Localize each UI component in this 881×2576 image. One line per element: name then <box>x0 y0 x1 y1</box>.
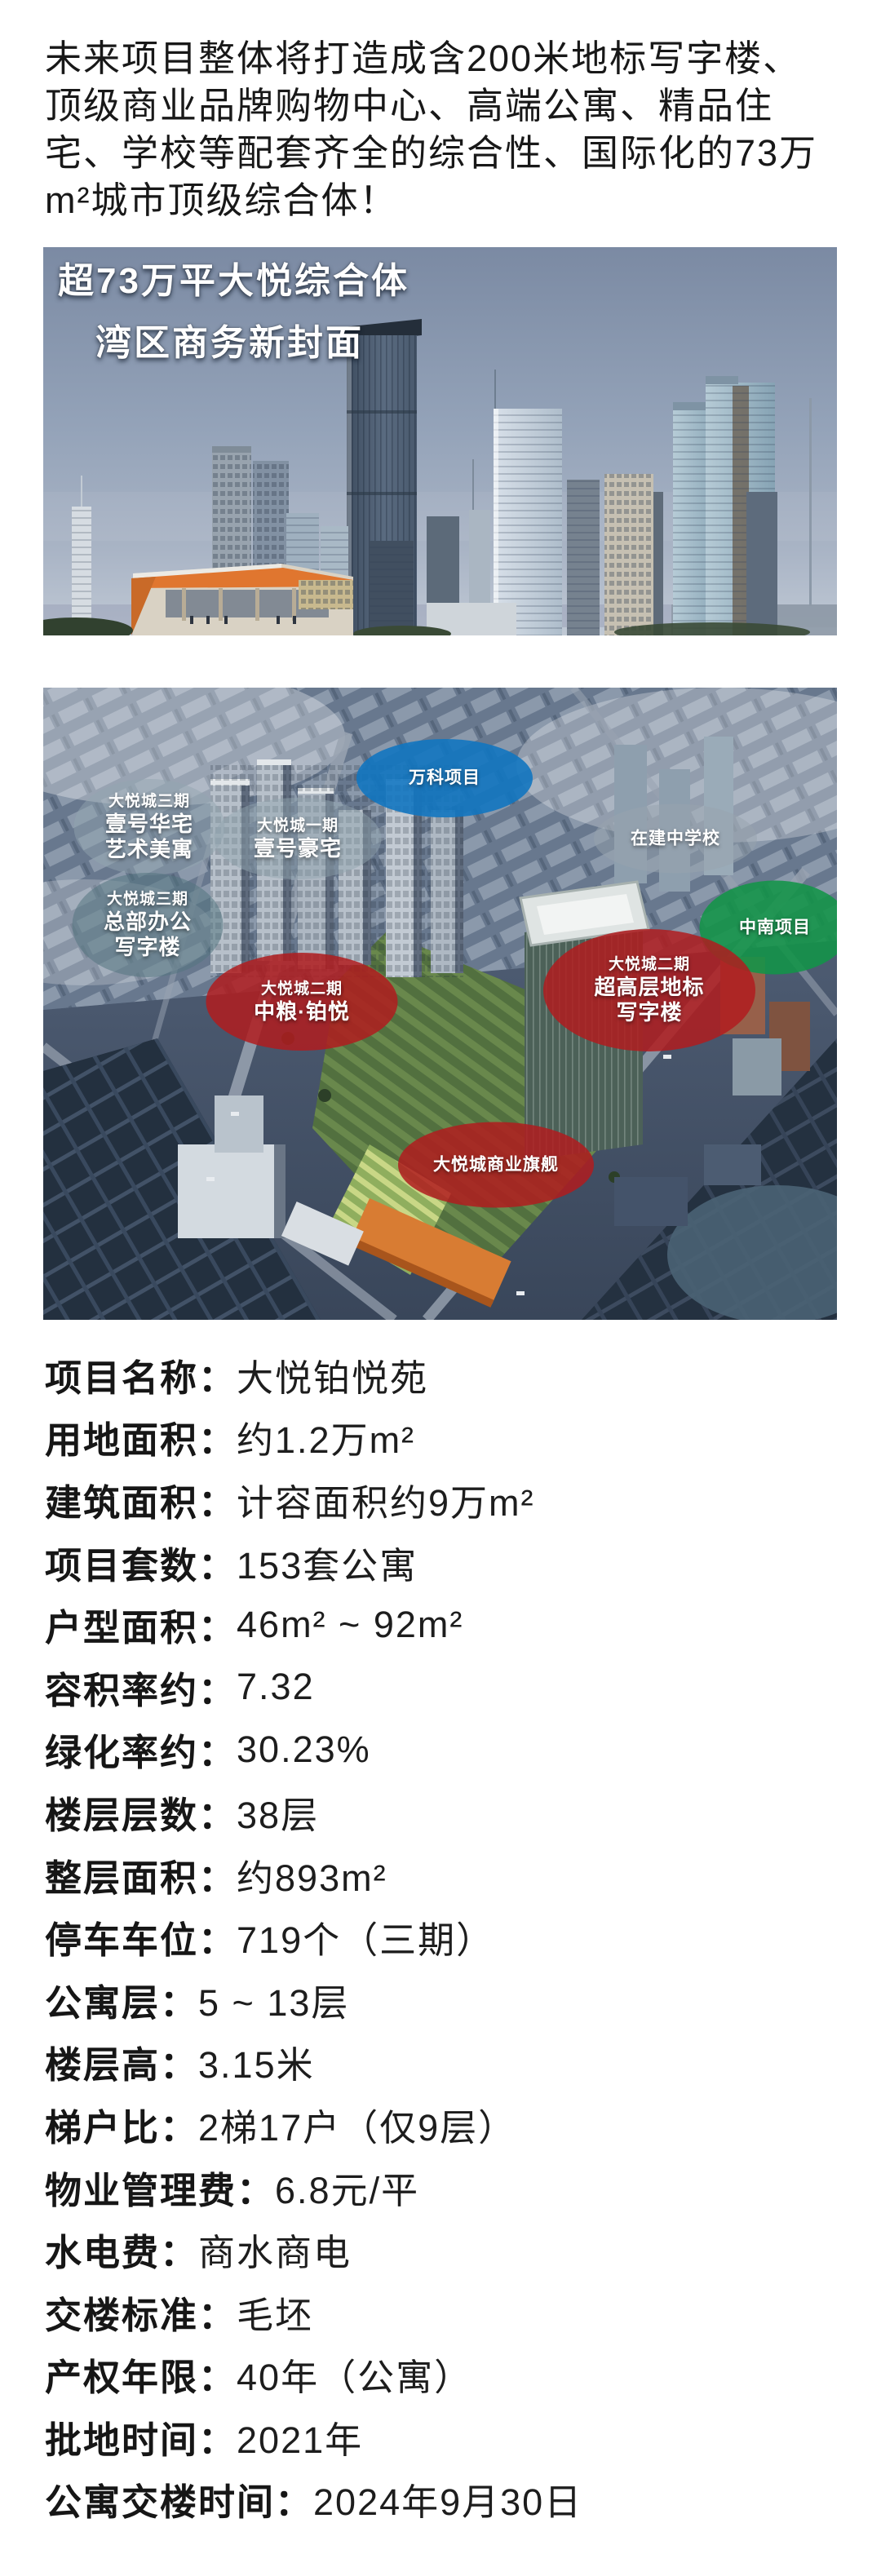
hero-title-line2: 湾区商务新封面 <box>95 322 364 365</box>
map-label-landmark: 大悦城二期 超高层地标 写字楼 <box>543 929 755 1051</box>
map-label-school: 在建中学校 <box>594 804 757 874</box>
spec-value: 3.15米 <box>198 2035 315 2088</box>
spec-row: 楼层层数：38层 <box>45 1781 865 1843</box>
spec-row: 绿化率约：30.23% <box>45 1719 865 1782</box>
spec-row: 公寓交楼时间：2024年9月30日 <box>45 2468 865 2531</box>
spec-value: 38层 <box>237 1786 319 1839</box>
spec-value: 46m² ~ 92m² <box>237 1604 463 1646</box>
spec-label: 整层面积： <box>45 1848 237 1901</box>
spec-value: 2024年9月30日 <box>313 2472 582 2525</box>
spec-row: 楼层高：3.15米 <box>45 2031 865 2094</box>
map-label-tag: 大悦城一期 <box>257 817 339 836</box>
spec-value: 商水商电 <box>198 2223 352 2276</box>
map-label-line: 壹号华宅 <box>105 812 193 837</box>
map-label-hq: 大悦城三期 总部办公 写字楼 <box>73 873 224 977</box>
spec-label: 容积率约： <box>45 1661 237 1714</box>
intro-line: 顶级商业品牌购物中心、高端公寓、精品住 <box>45 82 865 130</box>
map-label-text: 大悦城商业旗舰 <box>433 1154 559 1175</box>
spec-label: 交楼标准： <box>45 2286 237 2339</box>
map-label-line: 超高层地标 <box>594 975 704 1000</box>
spec-value: 7.32 <box>237 1666 315 1708</box>
map-label-wanke: 万科项目 <box>356 739 533 817</box>
spec-row: 物业管理费：6.8元/平 <box>45 2156 865 2219</box>
spec-label: 公寓层： <box>45 1973 198 2026</box>
map-label-tag: 大悦城三期 <box>107 890 188 910</box>
intro-line: m²城市顶级综合体！ <box>45 177 865 224</box>
spec-row: 公寓层：5 ~ 13层 <box>45 1968 865 2031</box>
spec-row: 容积率约：7.32 <box>45 1656 865 1719</box>
spec-value: 5 ~ 13层 <box>198 1973 349 2026</box>
spec-row: 水电费：商水商电 <box>45 2218 865 2281</box>
spec-label: 楼层高： <box>45 2035 198 2088</box>
spec-row: 交楼标准：毛坯 <box>45 2281 865 2344</box>
spec-row: 批地时间：2021年 <box>45 2406 865 2468</box>
map-label-line: 艺术美寓 <box>105 837 193 862</box>
intro-line: 未来项目整体将打造成含200米地标写字楼、 <box>45 35 865 82</box>
hero-skyline-art <box>43 247 837 635</box>
intro-paragraph: 未来项目整体将打造成含200米地标写字楼、 顶级商业品牌购物中心、高端公寓、精品… <box>45 35 865 224</box>
spec-row: 项目名称：大悦铂悦苑 <box>45 1343 865 1406</box>
spec-value: 2021年 <box>237 2410 363 2463</box>
map-label-line: 中粮·铂悦 <box>254 999 350 1025</box>
spec-label: 绿化率约： <box>45 1723 237 1776</box>
spec-value: 毛坯 <box>237 2286 313 2339</box>
spec-row: 梯户比：2梯17户（仅9层） <box>45 2093 865 2156</box>
specs-list: 项目名称：大悦铂悦苑 用地面积：约1.2万m² 建筑面积：计容面积约9万m² 项… <box>45 1343 865 2530</box>
spec-value: 153套公寓 <box>237 1536 418 1589</box>
map-label-tag: 大悦城三期 <box>108 792 190 812</box>
hero-title-line1: 超73万平大悦综合体 <box>58 260 410 303</box>
map-label-flagship: 大悦城商业旗舰 <box>398 1122 594 1208</box>
spec-value: 约1.2万m² <box>237 1410 415 1463</box>
spec-label: 停车车位： <box>45 1910 237 1963</box>
spec-label: 产权年限： <box>45 2348 237 2401</box>
spec-value: 6.8元/平 <box>275 2161 419 2214</box>
spec-label: 公寓交楼时间： <box>45 2472 313 2525</box>
map-label-line: 总部办公 <box>104 910 192 935</box>
spec-label: 批地时间： <box>45 2410 237 2463</box>
spec-value: 719个（三期） <box>237 1910 494 1963</box>
hero-image[interactable]: 超73万平大悦综合体 湾区商务新封面 <box>43 247 837 635</box>
intro-line: 宅、学校等配套齐全的综合性、国际化的73万 <box>45 130 865 177</box>
spec-label: 户型面积： <box>45 1598 237 1651</box>
spec-label: 物业管理费： <box>45 2161 275 2214</box>
spec-label: 梯户比： <box>45 2098 198 2151</box>
spec-label: 建筑面积： <box>45 1473 237 1526</box>
spec-label: 水电费： <box>45 2223 198 2276</box>
map-label-tag: 大悦城二期 <box>261 980 343 999</box>
spec-value: 大悦铂悦苑 <box>237 1348 428 1401</box>
spec-label: 项目名称： <box>45 1348 237 1401</box>
map-label-line: 写字楼 <box>114 935 180 960</box>
spec-label: 项目套数： <box>45 1536 237 1589</box>
map-label-boyue: 大悦城二期 中粮·铂悦 <box>206 953 398 1051</box>
map-label-text: 万科项目 <box>409 768 480 789</box>
spec-row: 用地面积：约1.2万m² <box>45 1406 865 1469</box>
spec-value: 40年（公寓） <box>237 2348 472 2401</box>
map-label-line: 壹号豪宅 <box>254 836 342 861</box>
spec-row: 项目套数：153套公寓 <box>45 1531 865 1594</box>
spec-row: 停车车位：719个（三期） <box>45 1905 865 1968</box>
map-label-huazhai: 大悦城三期 壹号华宅 艺术美寓 <box>74 779 225 875</box>
map-label-line: 写字楼 <box>616 1000 682 1025</box>
map-label-tag: 大悦城二期 <box>609 955 690 975</box>
spec-label: 楼层层数： <box>45 1786 237 1839</box>
spec-value: 计容面积约9万m² <box>237 1473 535 1526</box>
spec-row: 产权年限：40年（公寓） <box>45 2344 865 2406</box>
spec-row: 整层面积：约893m² <box>45 1843 865 1906</box>
spec-value: 2梯17户（仅9层） <box>198 2098 516 2151</box>
spec-label: 用地面积： <box>45 1410 237 1463</box>
spec-value: 30.23% <box>237 1728 371 1771</box>
map-label-text: 在建中学校 <box>631 828 720 849</box>
aerial-image[interactable]: 万科项目 大悦城三期 壹号华宅 艺术美寓 大悦城一期 壹号豪宅 在建中学校 大悦… <box>43 688 837 1320</box>
map-label-text: 中南项目 <box>739 917 811 938</box>
spec-row: 建筑面积：计容面积约9万m² <box>45 1468 865 1531</box>
spec-row: 户型面积：46m² ~ 92m² <box>45 1593 865 1656</box>
spec-value: 约893m² <box>237 1848 387 1901</box>
map-label-haozhai: 大悦城一期 壹号豪宅 <box>215 798 382 879</box>
